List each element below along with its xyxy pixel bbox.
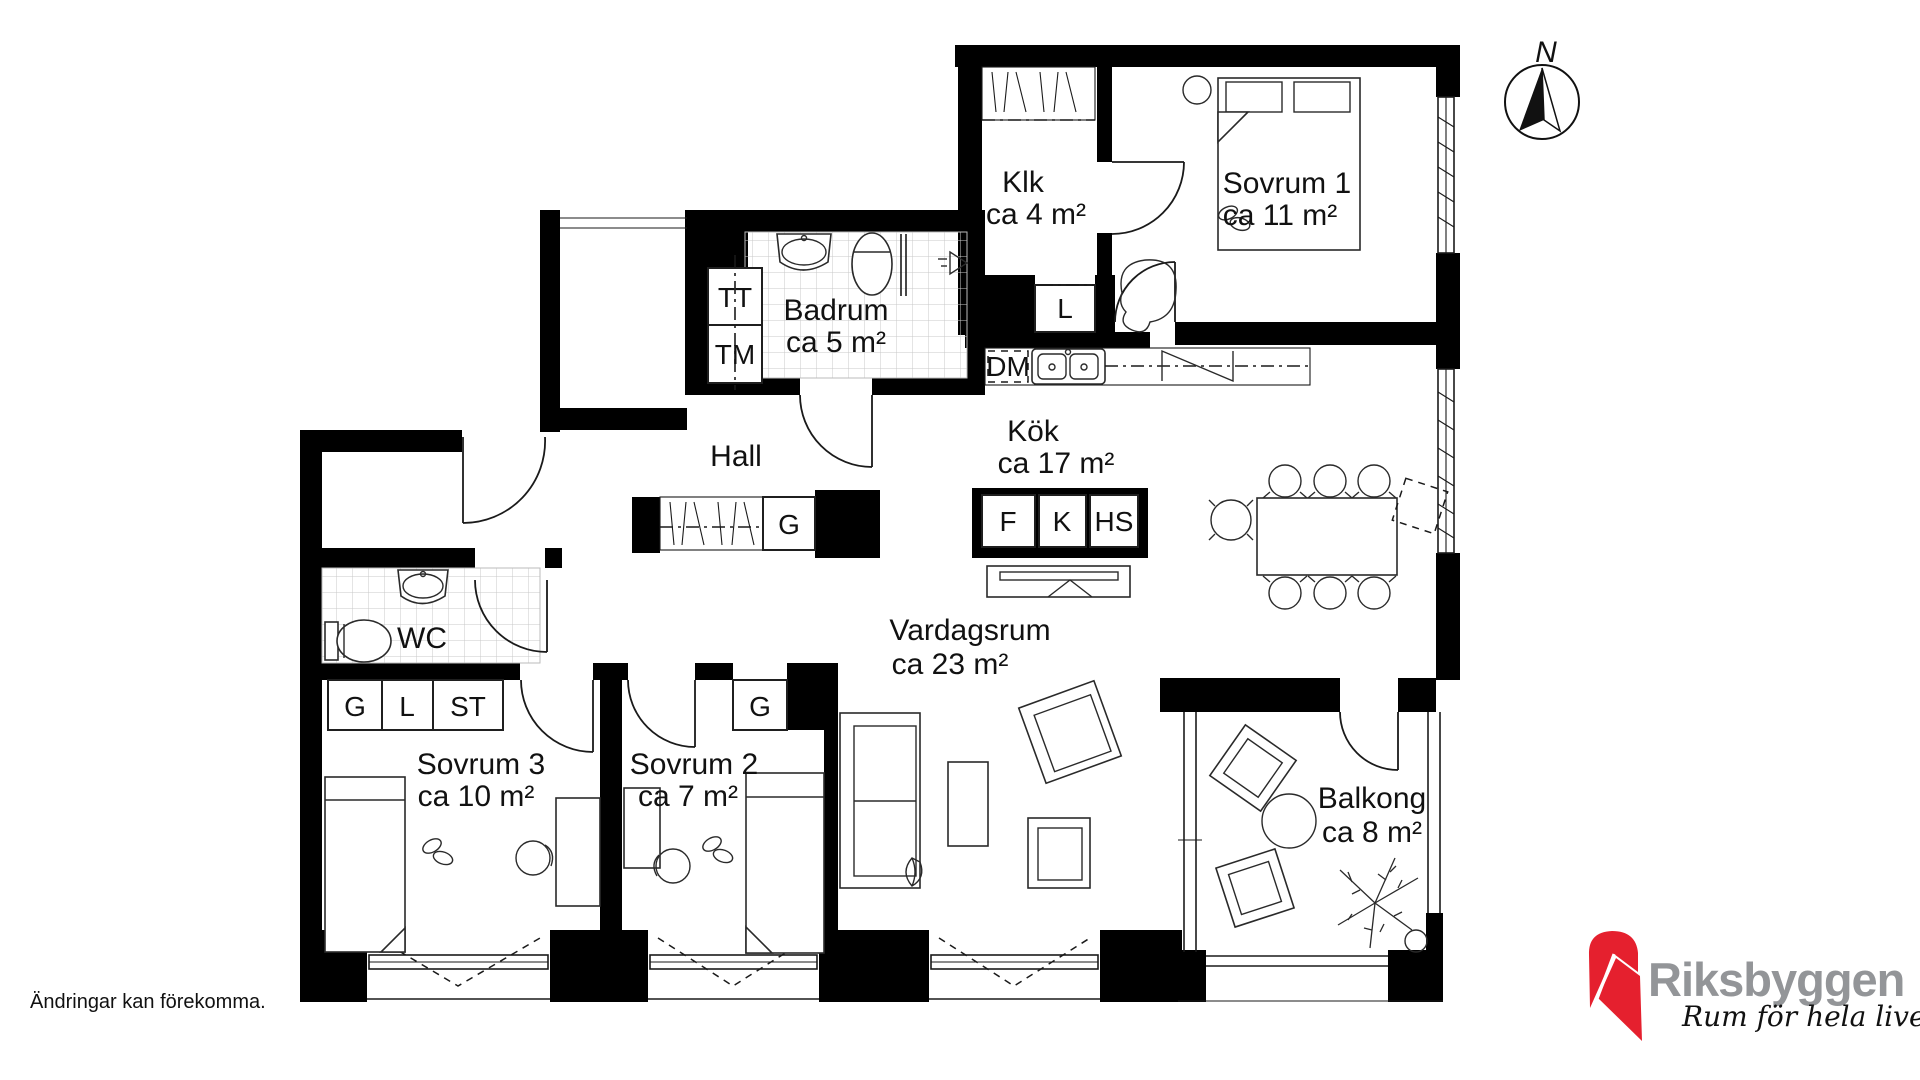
label-sovrum2: Sovrum 2: [630, 748, 758, 781]
riksbyggen-logo-text: Riksbyggen: [1648, 953, 1904, 1006]
wc-toilet-tank: [325, 622, 338, 660]
label-klk: Klk: [1002, 166, 1045, 199]
window-bay-vardagsrum: [929, 938, 1100, 999]
vardagsrum-furniture: [840, 681, 1121, 888]
front-door: [463, 437, 545, 523]
label-balkong: Balkong: [1318, 782, 1426, 815]
label-tm: TM: [715, 339, 755, 370]
label-hall: Hall: [710, 440, 762, 473]
badrum-toilet: [852, 233, 892, 295]
sovrum2-door: [628, 680, 695, 747]
label-dm: DM: [986, 351, 1030, 382]
badrum-door: [800, 395, 872, 467]
label-balkong-area: ca 8 m²: [1322, 816, 1422, 849]
klk-wardrobe: [982, 67, 1095, 120]
sofa: [840, 713, 920, 888]
label-sovrum1: Sovrum 1: [1223, 167, 1351, 200]
label-kok: Kök: [1007, 415, 1060, 448]
window-kok: [1438, 369, 1454, 553]
floorplan-svg: Klk ca 4 m² Sovrum 1 ca 11 m² Badrum ca …: [0, 0, 1920, 1080]
wc-toilet: [337, 620, 391, 662]
label-vardagsrum-area: ca 23 m²: [892, 648, 1009, 681]
label-sovrum3-area: ca 10 m²: [418, 780, 535, 813]
sovrum3-desk: [556, 798, 600, 906]
label-kok-area: ca 17 m²: [998, 447, 1115, 480]
kitchen-bench: [987, 566, 1130, 597]
label-l-sov3: L: [399, 691, 415, 722]
window-sovrum1: [1438, 97, 1454, 253]
dining-chair-dashed: [1392, 478, 1447, 533]
kitchen-sink: [1032, 349, 1105, 384]
label-sovrum1-area: ca 11 m²: [1223, 199, 1337, 232]
floorplan-page: Klk ca 4 m² Sovrum 1 ca 11 m² Badrum ca …: [0, 0, 1920, 1080]
armchair-square: [1028, 818, 1090, 888]
stove-symbol: [1162, 351, 1233, 381]
label-g-sov2: G: [749, 691, 771, 722]
sovrum3-chair: [516, 841, 550, 875]
balcony-chair-2: [1216, 849, 1294, 927]
sovrum3-bed: [325, 777, 405, 952]
riksbyggen-logo: Riksbyggen Rum för hela livet: [1589, 931, 1920, 1041]
label-hs: HS: [1095, 506, 1134, 537]
label-badrum-area: ca 5 m²: [786, 326, 886, 359]
dining-table: [1257, 498, 1397, 575]
label-sovrum3: Sovrum 3: [417, 748, 545, 781]
label-l-klk: L: [1057, 293, 1073, 324]
balcony-table: [1262, 794, 1316, 848]
compass-needle-light: [1542, 68, 1560, 131]
compass-needle-dark: [1519, 68, 1544, 131]
label-st-sov3: ST: [450, 691, 486, 722]
label-g-hall: G: [778, 509, 800, 540]
sovrum3-door: [521, 680, 593, 752]
label-klk-area: ca 4 m²: [986, 198, 1086, 231]
label-f: F: [999, 506, 1016, 537]
sovrum1-armchair: [1121, 260, 1176, 332]
label-g-sov3: G: [344, 691, 366, 722]
dining-group: [1209, 465, 1448, 609]
riksbyggen-logo-mark: [1589, 931, 1642, 1041]
label-k: K: [1053, 506, 1072, 537]
hall-wardrobe: [660, 497, 763, 550]
balcony-plant: [1338, 858, 1418, 948]
sovrum2-slippers: [700, 834, 734, 865]
compass: N: [1505, 36, 1579, 139]
balcony-door: [1340, 712, 1398, 770]
label-sovrum2-area: ca 7 m²: [638, 780, 738, 813]
disclaimer: Ändringar kan förekomma.: [30, 991, 266, 1013]
sovrum2-bed: [746, 773, 824, 953]
compass-n-label: N: [1535, 36, 1557, 69]
label-badrum: Badrum: [783, 294, 888, 327]
armchair-tilted: [1019, 681, 1122, 784]
sovrum3-slippers: [420, 836, 454, 867]
balcony-drain: [1405, 930, 1427, 952]
sovrum1-stool: [1183, 76, 1211, 104]
sovrum2-chair: [656, 849, 690, 883]
label-vardagsrum: Vardagsrum: [889, 614, 1050, 647]
label-tt: TT: [718, 282, 752, 313]
dining-armchair: [1211, 500, 1251, 540]
riksbyggen-tagline: Rum för hela livet: [1681, 1000, 1920, 1033]
label-wc: WC: [397, 622, 447, 655]
klk-door: [1112, 162, 1184, 234]
coffee-table: [948, 762, 988, 846]
balcony-chair-1: [1210, 725, 1296, 811]
